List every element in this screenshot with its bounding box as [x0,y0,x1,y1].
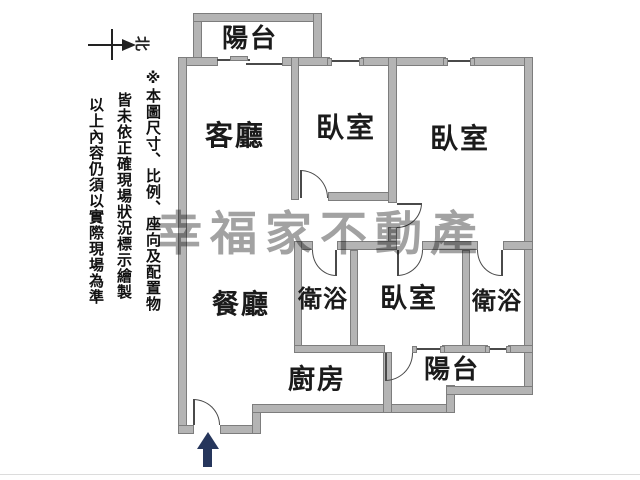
wall-outer-bottom-a [178,425,194,434]
wall-top-balcony-right [313,13,322,62]
window-cap [506,346,511,353]
label-balcony-bottom: 陽台 [424,357,480,383]
label-kitchen: 廚房 [288,367,346,394]
floor-plan-image: 北 ※本圖尺寸、比例、座向及配置物 皆未依正確現場狀況標示繪製 以上內容仍須以實… [0,0,640,480]
door-arc-entrance [193,399,220,425]
north-label: 北 [132,36,153,51]
north-arrow-line [88,44,123,46]
door-arc-bedroom1 [300,170,328,198]
label-living-room: 客廳 [205,122,265,150]
window-cap [440,346,445,353]
wall-bedroom1-bedroom2-divider [388,57,397,203]
slider-balcony-panel [230,56,248,61]
label-balcony-top: 陽台 [222,26,278,52]
wall-bedroom1-bottom [328,192,397,201]
disclaimer-column-2: 皆未依正確現場狀況標示繪製 [115,92,133,300]
entry-arrow-shaft [203,448,212,467]
window-bathroom2-balcony [488,348,508,350]
entry-arrow-head [197,432,219,449]
wall-living-bedroom1-divider [291,57,299,200]
wall-kitchen-bottom [252,404,455,413]
bottom-border-line [0,474,640,475]
window-cap [327,58,332,66]
window-bedroom3-balcony [415,348,442,350]
slider-balcony-line2 [246,63,282,65]
wall-bathroom1-bedroom3-divider [350,250,358,352]
window-cap [443,58,448,66]
wall-mid-bottom-b [442,345,488,353]
label-bathroom-1: 衛浴 [298,287,348,311]
window-cap [485,346,490,353]
window-cap [412,346,417,353]
wall-hall-south-d [503,241,533,250]
label-bedroom-3: 臥室 [380,286,438,313]
wall-mid-bottom-c [508,345,533,353]
window-cap [470,58,475,66]
north-arrow-cross [111,29,113,60]
wall-top-balcony-top [193,13,322,22]
door-arc-balcony [385,353,413,381]
wall-outer-top-b [282,57,330,66]
label-dining-room: 餐廳 [212,292,270,319]
wall-balcony-bottom-right [446,386,533,395]
label-bedroom-1: 臥室 [316,114,376,142]
wall-bedroom3-bathroom2-divider [462,250,470,352]
disclaimer-column-1: ※本圖尺寸、比例、座向及配置物 [144,69,162,312]
label-bathroom-2: 衛浴 [472,289,522,313]
watermark-text: 幸福家不動產 [155,211,485,258]
wall-mid-bottom-a [294,345,385,353]
window-bedroom2-top [446,60,472,62]
wall-outer-top-c [361,57,446,66]
label-bedroom-2: 臥室 [430,125,490,153]
window-bedroom1-top [330,60,361,62]
disclaimer-column-3: 以上內容仍須以實際現場為準 [87,97,105,305]
window-cap [359,58,364,66]
door-leaf-bathroom2 [501,250,503,276]
